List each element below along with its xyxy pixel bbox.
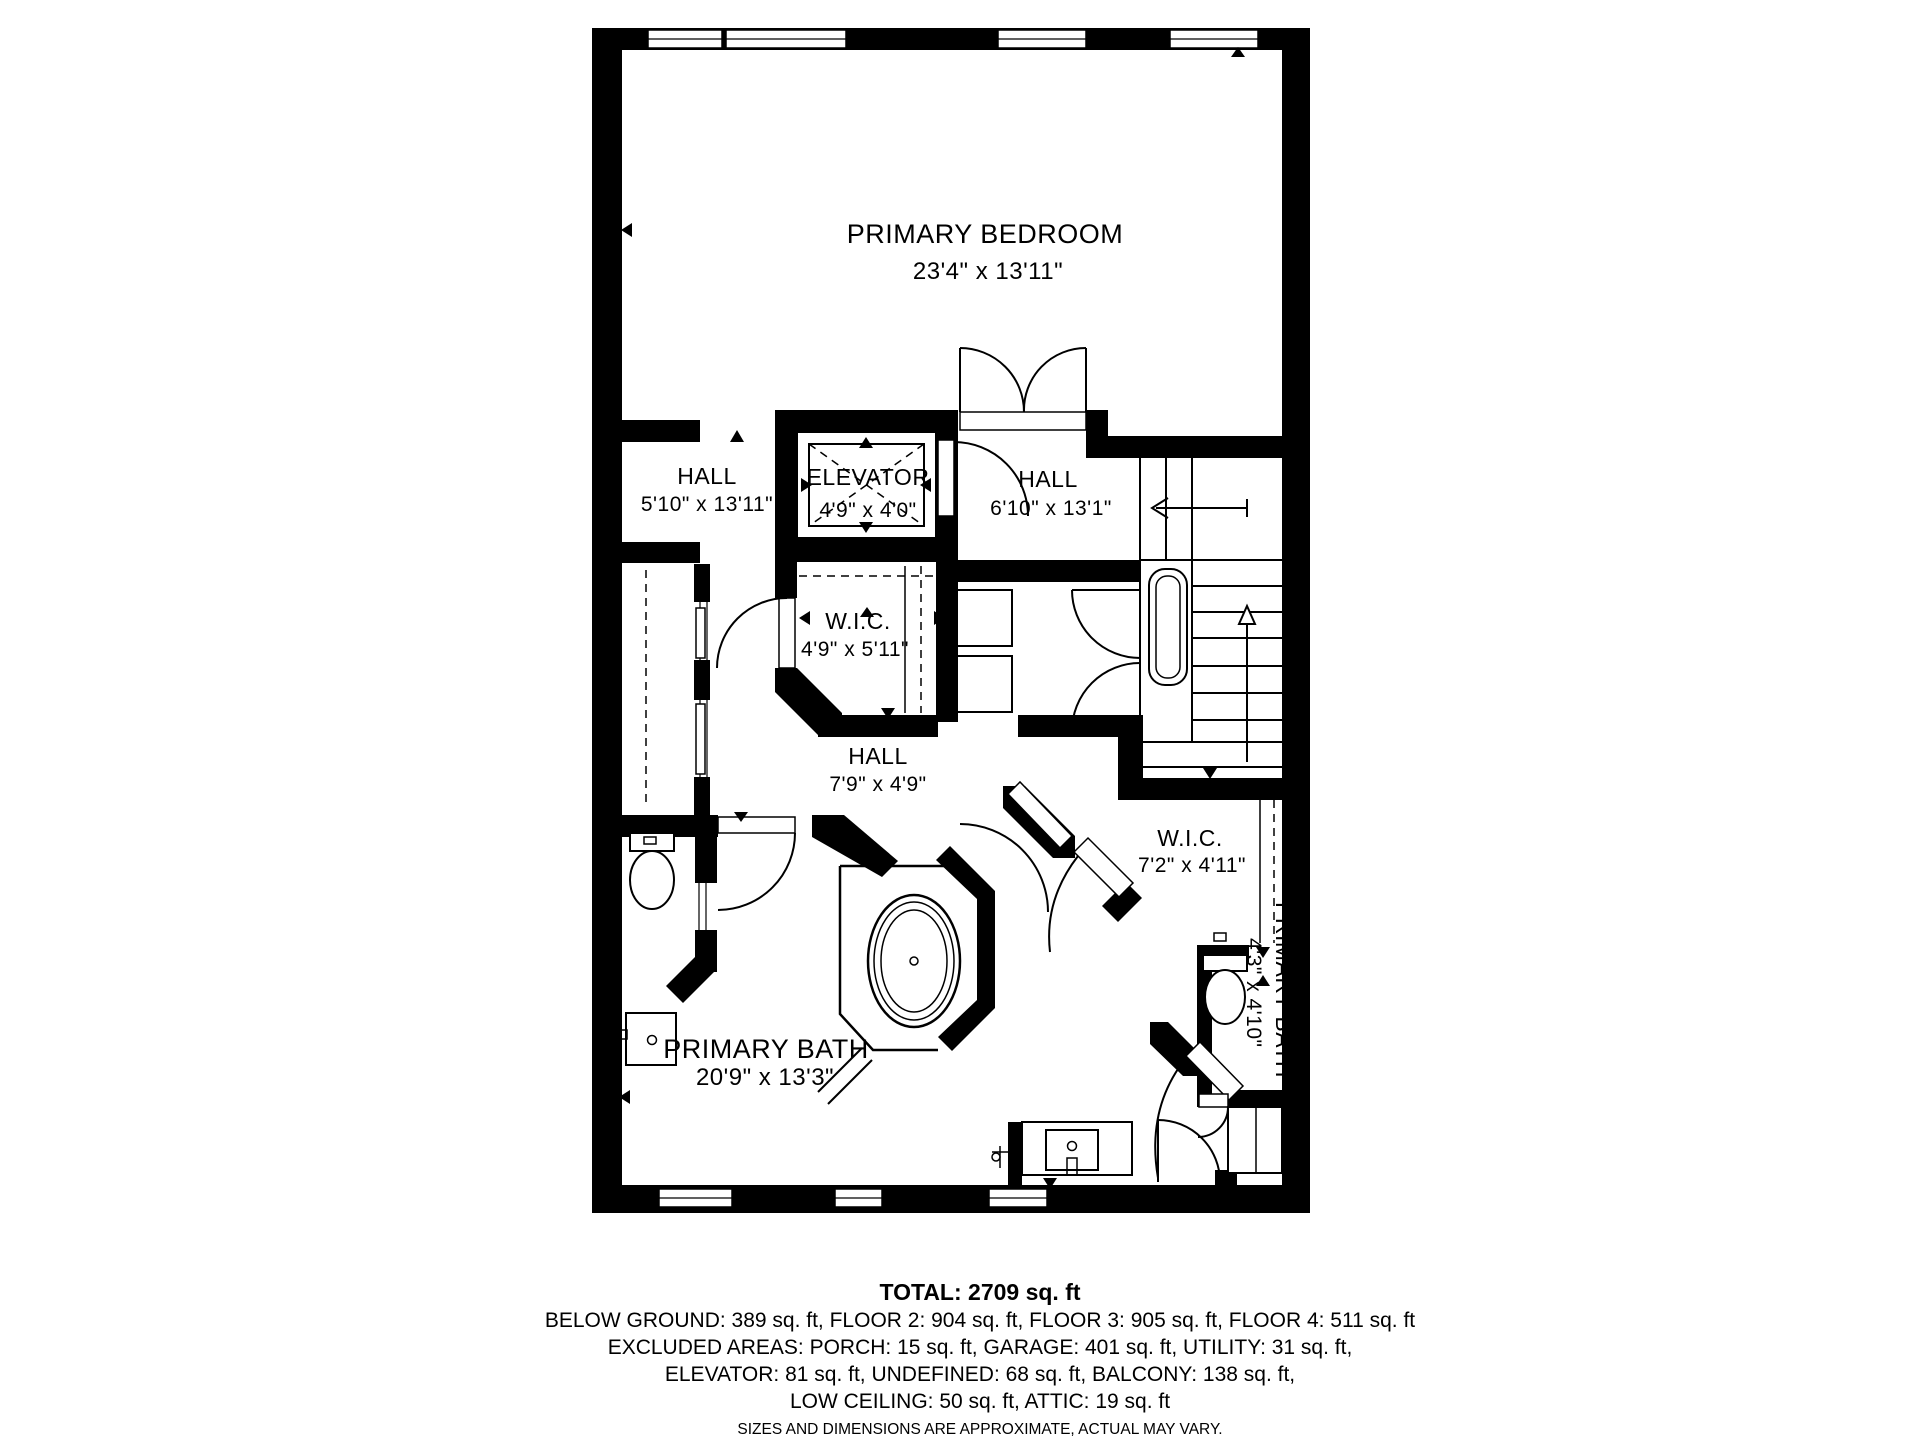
- window-icon: [998, 30, 1086, 48]
- window-icon: [1170, 30, 1258, 48]
- floor-plan-canvas: PRIMARY BATH 4'3" x 4'10": [0, 0, 1920, 1440]
- room-dims: 7'9" x 4'9": [829, 773, 926, 796]
- window-icon: [659, 1189, 732, 1207]
- room-label: W.I.C.: [1157, 825, 1223, 851]
- room-label: ELEVATOR: [807, 464, 930, 490]
- room-dims: 20'9" x 13'3": [696, 1064, 834, 1091]
- room-label: HALL: [848, 743, 908, 769]
- summary-line: EXCLUDED AREAS: PORCH: 15 sq. ft, GARAGE…: [608, 1336, 1353, 1359]
- room-dims: 23'4" x 13'11": [913, 258, 1063, 285]
- room-label: PRIMARY BATH: [663, 1034, 869, 1064]
- floor-plan-page: PRIMARY BATH 4'3" x 4'10": [0, 0, 1920, 1440]
- window-icon: [648, 30, 722, 48]
- room-dims: 5'10" x 13'11": [641, 493, 773, 516]
- room-dims: 7'2" x 4'11": [1138, 854, 1246, 877]
- vanity-sink-icon: [1022, 1122, 1132, 1175]
- toilet-icon: [630, 833, 674, 909]
- room-dims: 6'10" x 13'1": [990, 497, 1112, 520]
- room-label: W.I.C.: [825, 608, 891, 634]
- window-icon: [726, 30, 846, 48]
- room-label: HALL: [1018, 466, 1078, 492]
- room-dims: 4'9" x 5'11": [801, 638, 909, 661]
- shower-icon: [1228, 1107, 1282, 1173]
- summary-line: BELOW GROUND: 389 sq. ft, FLOOR 2: 904 s…: [545, 1309, 1415, 1332]
- room-label: HALL: [677, 463, 737, 489]
- summary-disclaimer: SIZES AND DIMENSIONS ARE APPROXIMATE, AC…: [737, 1421, 1222, 1438]
- summary-line: LOW CEILING: 50 sq. ft, ATTIC: 19 sq. ft: [790, 1390, 1170, 1413]
- window-icon: [835, 1189, 882, 1207]
- summary-line: ELEVATOR: 81 sq. ft, UNDEFINED: 68 sq. f…: [665, 1363, 1295, 1386]
- summary-total: TOTAL: 2709 sq. ft: [879, 1279, 1080, 1305]
- canvas-background: [0, 0, 1920, 1440]
- room-dims: 4'9" x 4'0": [819, 499, 916, 522]
- window-icon: [989, 1189, 1047, 1207]
- room-label: PRIMARY BEDROOM: [847, 219, 1124, 249]
